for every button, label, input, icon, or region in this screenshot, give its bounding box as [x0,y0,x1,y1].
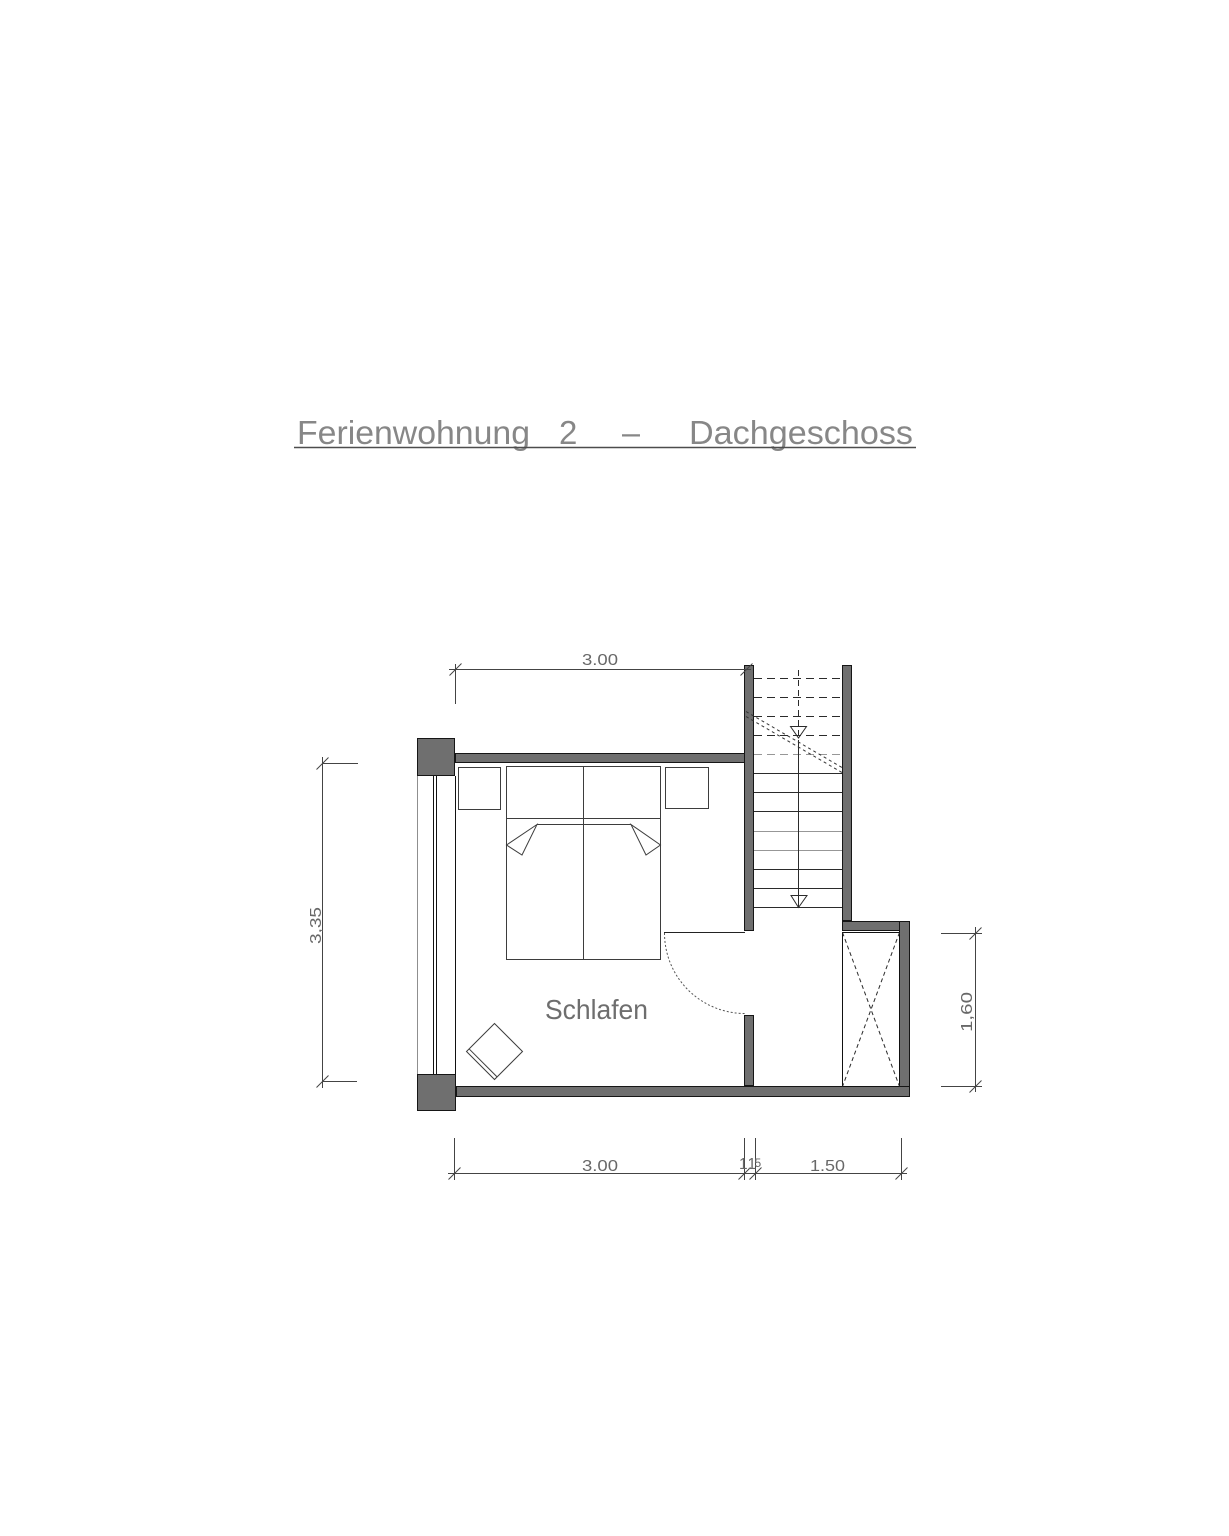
svg-text:1: 1 [739,1156,748,1173]
svg-text:5: 5 [755,1156,762,1170]
svg-text:3.00: 3.00 [582,1158,618,1175]
svg-text:1,60: 1,60 [959,992,976,1032]
svg-text:–: – [622,414,641,451]
svg-text:3,35: 3,35 [308,907,325,944]
svg-text:2: 2 [559,414,577,451]
svg-text:Ferienwohnung: Ferienwohnung [297,414,530,451]
svg-text:Schlafen: Schlafen [545,994,648,1025]
svg-text:Dachgeschoss: Dachgeschoss [689,414,913,451]
svg-text:1.50: 1.50 [810,1158,845,1175]
svg-text:3.00: 3.00 [582,652,618,669]
